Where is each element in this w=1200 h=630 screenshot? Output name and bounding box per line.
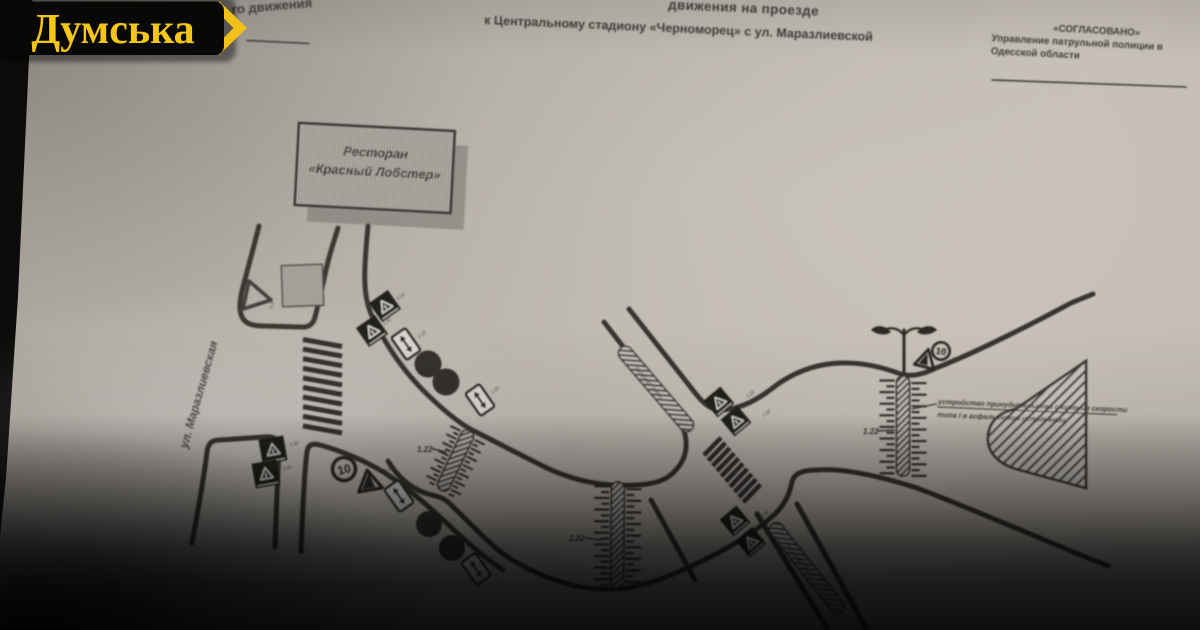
- svg-text:Думська: Думська: [31, 7, 194, 53]
